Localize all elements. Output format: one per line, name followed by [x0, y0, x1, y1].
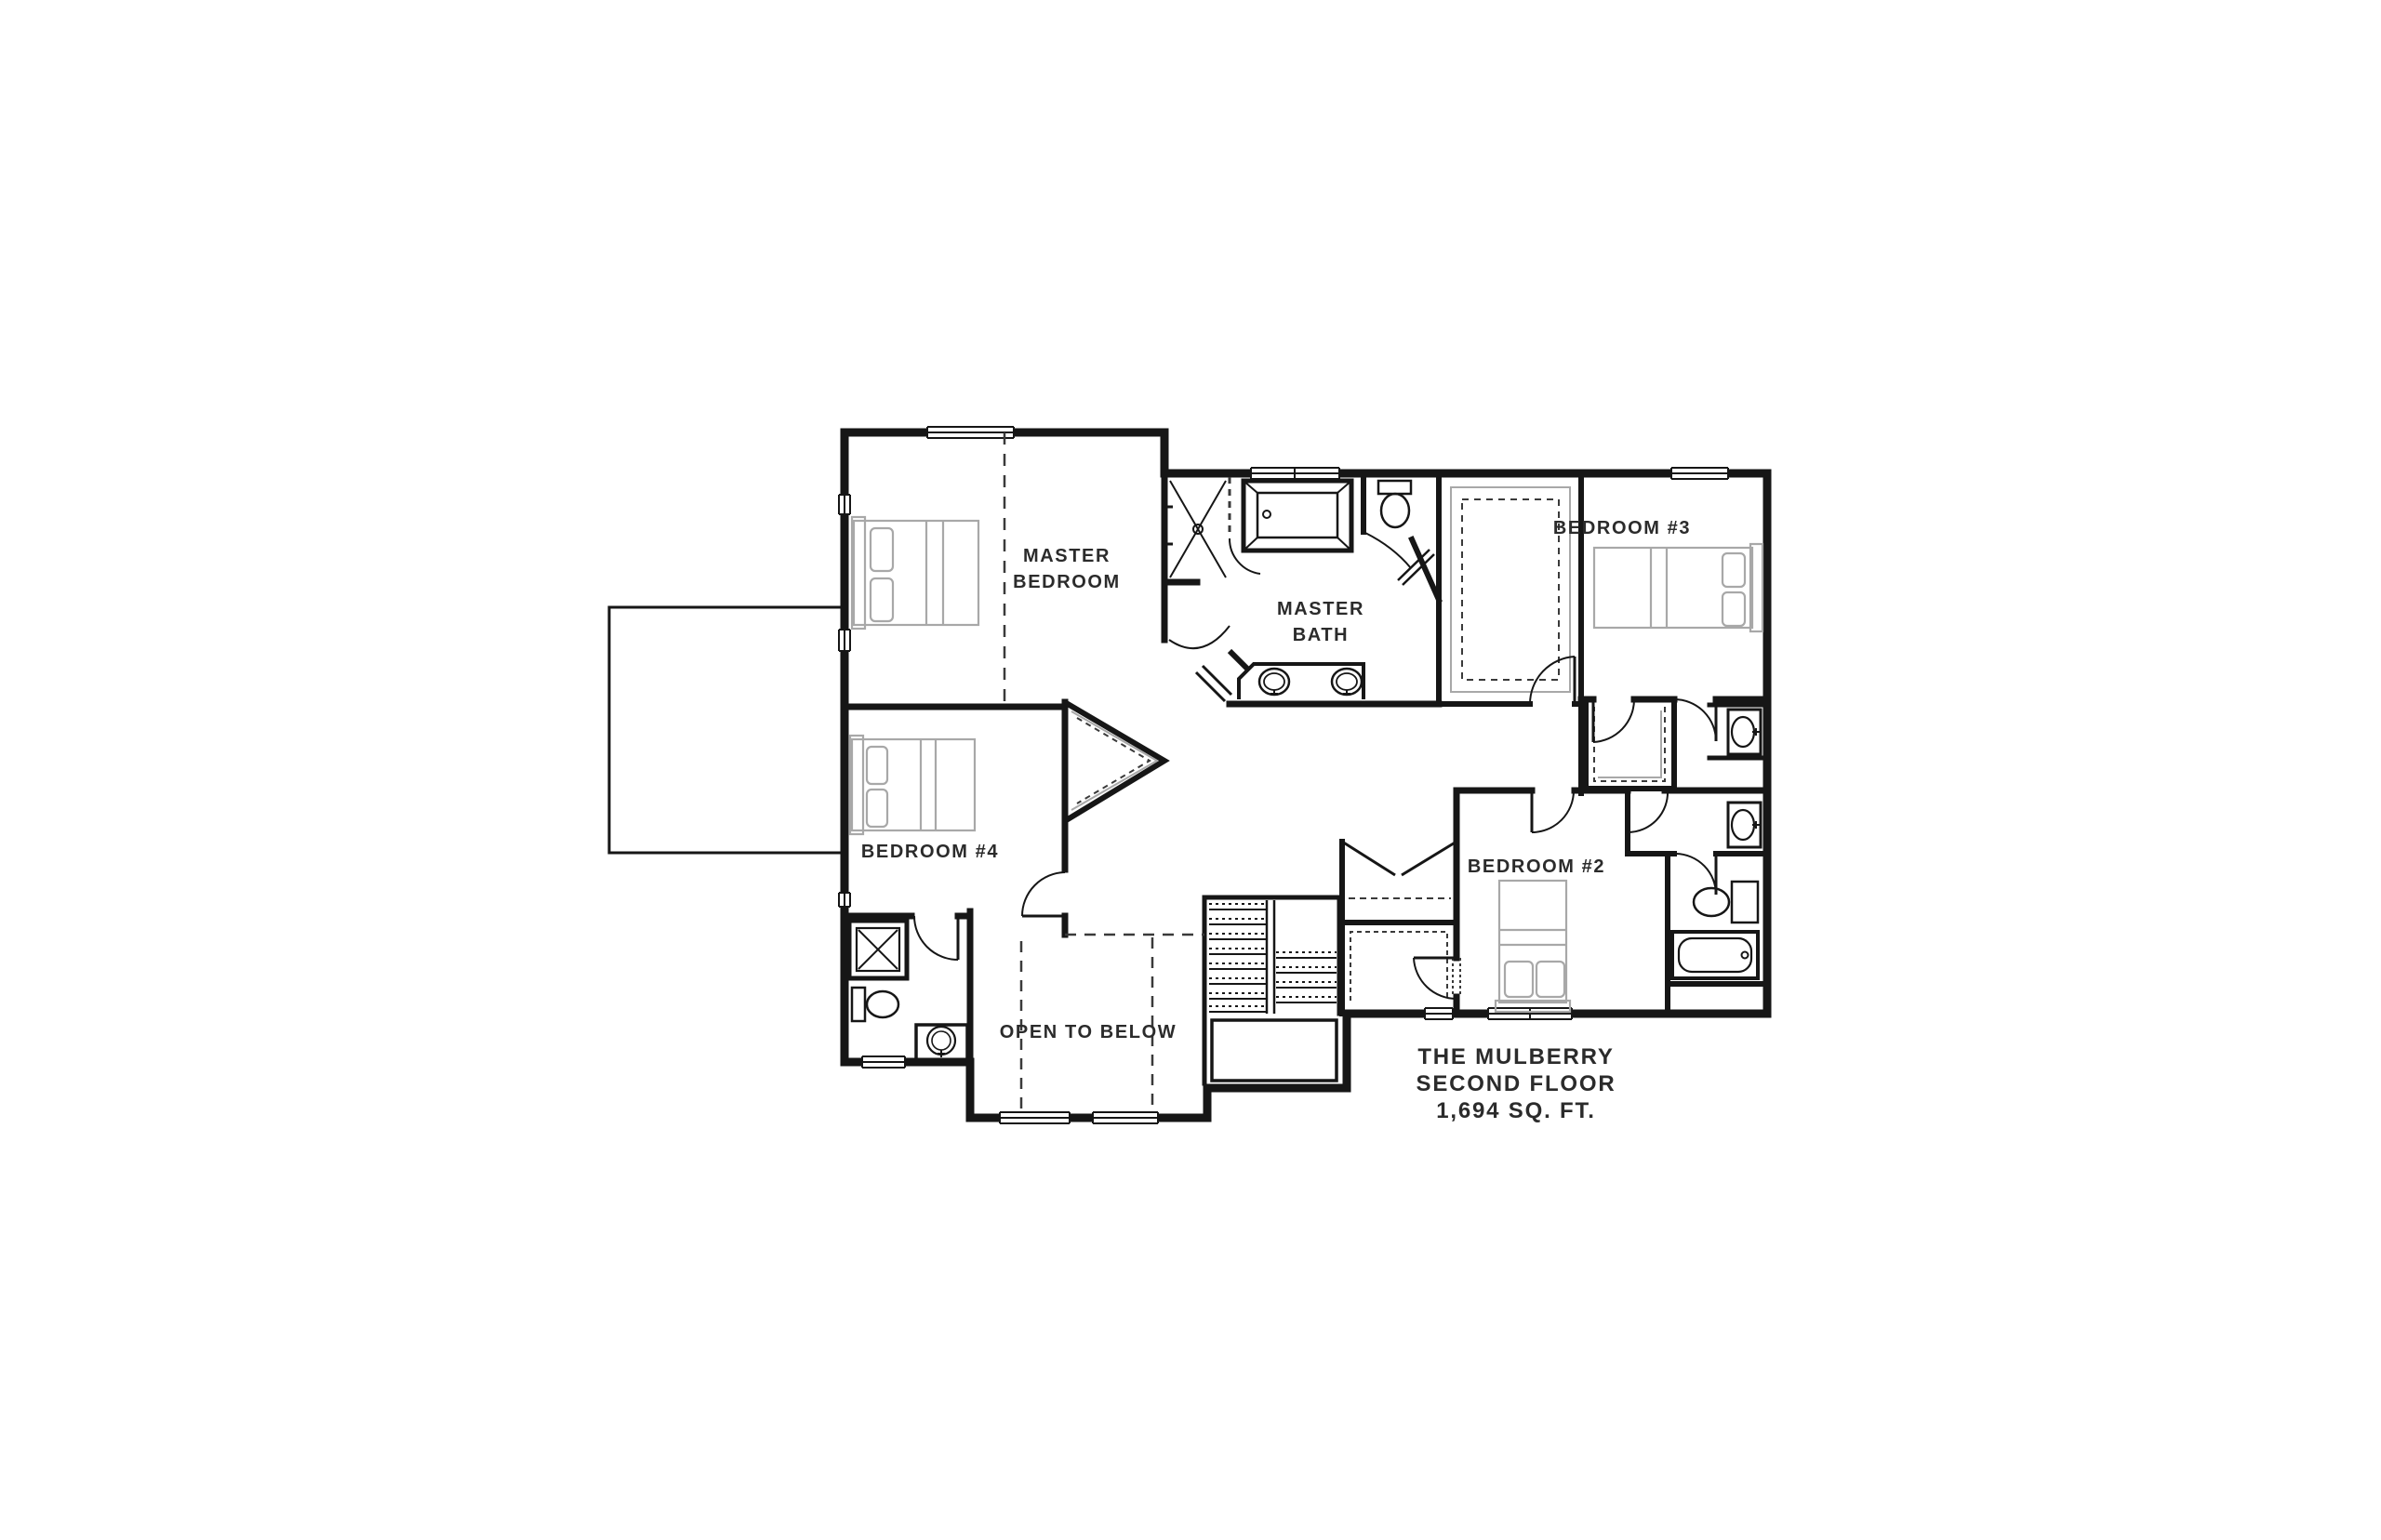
tub-faucet-icon — [1742, 952, 1749, 959]
sink-icon — [1259, 669, 1289, 696]
master-shower — [1164, 481, 1226, 577]
staircase — [1209, 900, 1337, 1014]
pillow — [867, 747, 887, 784]
tub-drain-icon — [1263, 511, 1270, 518]
sink-icon — [1732, 717, 1754, 747]
label-bedroom-2: BEDROOM #2 — [1468, 854, 1605, 880]
bath1-shower — [849, 921, 907, 978]
floor-plan-drawing — [0, 0, 2381, 1540]
door-wc — [1365, 533, 1434, 585]
door-bed2-entry — [1532, 790, 1574, 832]
vanity-niche-2 — [1728, 803, 1761, 847]
plan-title-sqft: 1,694 SQ. FT. — [1417, 1097, 1616, 1124]
label-line: BATH — [1277, 622, 1364, 648]
hall-toilet — [1694, 882, 1758, 923]
label-line: BEDROOM #4 — [861, 839, 999, 865]
window-master-top — [927, 426, 1014, 439]
label-line: OPEN TO BELOW — [1000, 1019, 1177, 1045]
label-bedroom-3: BEDROOM #3 — [1553, 515, 1691, 541]
wall-closet-block — [1342, 842, 1457, 1014]
door-jamb-dots-bed2closet — [1453, 958, 1460, 997]
door-vestibule — [1628, 790, 1668, 832]
pillow — [1723, 592, 1745, 626]
plan-title-name: THE MULBERRY — [1417, 1043, 1616, 1070]
hall-tub — [1672, 932, 1758, 978]
pillow — [1505, 962, 1533, 997]
plan-title-floor: SECOND FLOOR — [1417, 1070, 1616, 1097]
label-open-to-below: OPEN TO BELOW — [1000, 1019, 1177, 1045]
plan-title-block: THE MULBERRY SECOND FLOOR 1,694 SQ. FT. — [1417, 1043, 1616, 1124]
door-bath1 — [914, 916, 958, 960]
furniture — [850, 517, 1762, 1012]
label-line: MASTER — [1013, 543, 1121, 569]
pillow — [1536, 962, 1564, 997]
label-master-bath: MASTER BATH — [1277, 596, 1364, 648]
vanity-niche-1 — [1728, 710, 1761, 754]
door-bed3-closet — [1593, 699, 1634, 742]
label-bedroom-4: BEDROOM #4 — [861, 839, 999, 865]
bed-bedroom2 — [1496, 881, 1570, 1012]
bed2-closet-shelves — [1350, 932, 1447, 1001]
master-closet-shelves — [1462, 499, 1559, 680]
window-master-left-lower — [838, 630, 851, 651]
master-toilet — [1378, 481, 1411, 527]
bed-bedroom4 — [850, 736, 975, 834]
door-bed4-entry — [1022, 872, 1065, 916]
stair-treads-right — [1276, 952, 1337, 1002]
window-bay-bottom-left — [1000, 1111, 1070, 1124]
shower-x-icon — [858, 930, 898, 969]
label-line: MASTER — [1277, 596, 1364, 622]
window-masterbath-top — [1251, 467, 1339, 480]
master-tub — [1244, 481, 1351, 551]
window-bedroom2-bottom — [1488, 1007, 1572, 1020]
master-vanity — [1239, 664, 1363, 699]
shower-x-icon — [1170, 481, 1226, 577]
door-master-suite-entry — [1169, 626, 1247, 701]
roof-bumpout-outline — [609, 607, 844, 853]
pillow — [871, 578, 893, 621]
pillow — [871, 528, 893, 571]
window-bedroom2-bottom-small — [1425, 1007, 1453, 1020]
bath1-toilet — [852, 988, 898, 1021]
window-master-left-upper — [838, 495, 851, 514]
door-linen-double — [1342, 842, 1457, 875]
sink-icon — [1732, 810, 1754, 840]
bath1-vanity — [916, 1025, 967, 1060]
stair-landing-outline — [1212, 1020, 1337, 1081]
label-line: BEDROOM — [1013, 569, 1121, 595]
door-bed2-closet — [1414, 958, 1457, 999]
bed-bedroom3 — [1594, 544, 1762, 631]
sink-icon — [1332, 669, 1362, 696]
pillow — [867, 790, 887, 827]
window-bay-bottom-right — [1093, 1111, 1158, 1124]
master-closet-inner — [1451, 487, 1570, 692]
window-bedroom4-left — [838, 893, 851, 907]
label-line: BEDROOM #2 — [1468, 854, 1605, 880]
bed-master — [852, 517, 978, 629]
window-bath-bottom — [862, 1055, 905, 1069]
floor-plan-page: MASTER BEDROOM MASTER BATH BEDROOM #3 BE… — [0, 0, 2381, 1540]
label-master-bedroom: MASTER BEDROOM — [1013, 543, 1121, 595]
pillow — [1723, 553, 1745, 587]
bed4-closet-inner — [1071, 711, 1157, 810]
stair-treads-left — [1209, 904, 1267, 1012]
label-line: BEDROOM #3 — [1553, 515, 1691, 541]
stair-stringer — [1267, 900, 1274, 1014]
wall-bed4-closet — [1068, 704, 1164, 819]
window-bedroom3-top — [1671, 467, 1728, 480]
